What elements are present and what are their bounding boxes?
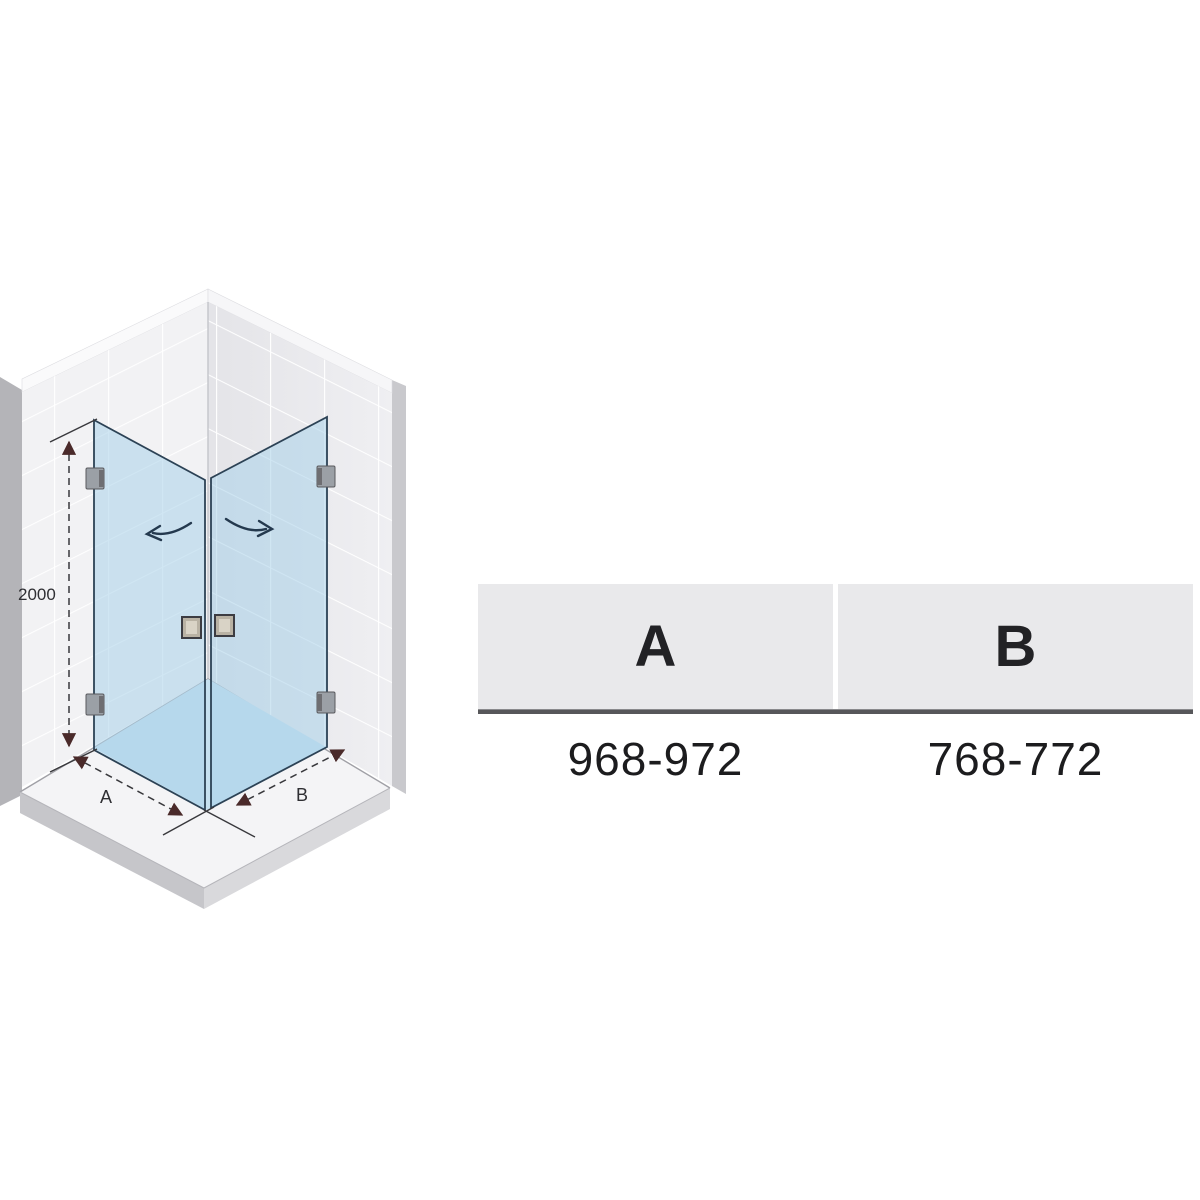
size-table-header-row: A B xyxy=(478,584,1193,709)
hinge-icon xyxy=(317,692,335,713)
value-cell-a: 968-972 xyxy=(478,714,833,804)
shower-enclosure-diagram: 2000 A B xyxy=(0,280,460,930)
height-dimension-label: 2000 xyxy=(18,585,56,604)
hinge-icon xyxy=(86,468,104,489)
size-table: A B 968-972 768-772 xyxy=(478,584,1193,804)
width-b-label: B xyxy=(296,785,308,805)
header-cell-b: B xyxy=(838,584,1193,709)
hinge-icon xyxy=(317,466,335,487)
header-cell-a: A xyxy=(478,584,833,709)
size-table-value-row: 968-972 768-772 xyxy=(478,714,1193,804)
value-cell-b: 768-772 xyxy=(838,714,1193,804)
hinge-icon xyxy=(86,694,104,715)
width-a-label: A xyxy=(100,787,112,807)
glass-door-b xyxy=(211,417,327,808)
door-handle-icon xyxy=(182,617,201,638)
glass-door-a xyxy=(94,420,205,810)
wall-end-face-right xyxy=(392,380,406,794)
door-handle-icon xyxy=(215,615,234,636)
